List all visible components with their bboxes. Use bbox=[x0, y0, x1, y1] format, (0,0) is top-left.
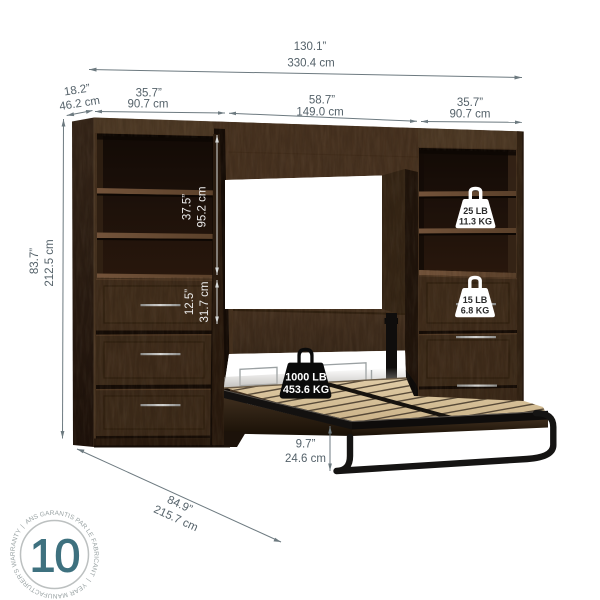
svg-text:1000 LB: 1000 LB bbox=[285, 371, 327, 383]
svg-text:11.3 KG: 11.3 KG bbox=[459, 217, 492, 227]
svg-text:24.6 cm: 24.6 cm bbox=[285, 453, 326, 465]
svg-text:37.5”: 37.5” bbox=[182, 194, 194, 220]
svg-text:83.7”: 83.7” bbox=[29, 248, 41, 274]
svg-text:15 LB: 15 LB bbox=[463, 295, 488, 305]
svg-text:6.8 KG: 6.8 KG bbox=[461, 306, 490, 316]
svg-text:149.0 cm: 149.0 cm bbox=[296, 107, 343, 119]
svg-text:453.6 KG: 453.6 KG bbox=[283, 384, 329, 396]
svg-text:12.5”: 12.5” bbox=[184, 289, 196, 315]
svg-text:35.7”: 35.7” bbox=[457, 97, 483, 109]
svg-text:25 LB: 25 LB bbox=[463, 206, 488, 216]
svg-text:10: 10 bbox=[30, 530, 80, 582]
svg-text:130.1”: 130.1” bbox=[294, 41, 327, 53]
svg-text:90.7 cm: 90.7 cm bbox=[128, 99, 169, 111]
svg-text:31.7 cm: 31.7 cm bbox=[199, 282, 211, 323]
svg-text:58.7”: 58.7” bbox=[309, 95, 335, 107]
svg-text:212.5 cm: 212.5 cm bbox=[44, 239, 56, 286]
svg-text:330.4 cm: 330.4 cm bbox=[287, 58, 334, 70]
svg-text:95.2 cm: 95.2 cm bbox=[197, 187, 209, 228]
svg-text:90.7 cm: 90.7 cm bbox=[450, 109, 491, 121]
svg-text:9.7”: 9.7” bbox=[296, 439, 316, 451]
